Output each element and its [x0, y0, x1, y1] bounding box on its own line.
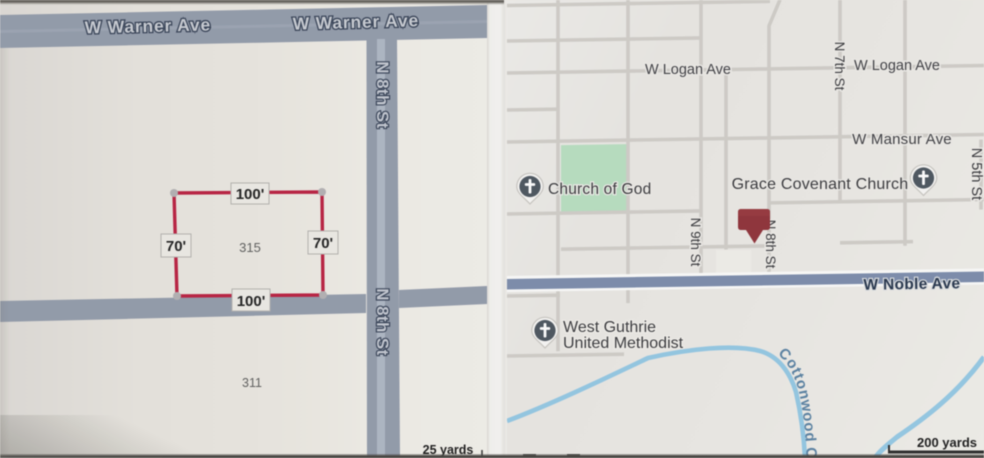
svg-text:W Warner Ave: W Warner Ave [292, 10, 419, 34]
svg-text:70': 70' [166, 238, 186, 255]
svg-text:200 yards: 200 yards [917, 435, 977, 450]
svg-text:N 8th St: N 8th St [373, 61, 392, 128]
svg-text:W Noble Ave: W Noble Ave [863, 275, 960, 294]
svg-text:N 7th St: N 7th St [832, 42, 847, 91]
svg-text:W Logan Ave: W Logan Ave [645, 62, 731, 78]
svg-text:United Methodist: United Methodist [563, 335, 684, 352]
svg-text:N 8th St: N 8th St [373, 288, 392, 355]
svg-text:N 5th St: N 5th St [968, 148, 984, 200]
svg-text:311: 311 [242, 376, 262, 390]
svg-text:W Warner Ave: W Warner Ave [84, 14, 211, 37]
svg-text:W Mansur Ave: W Mansur Ave [852, 131, 952, 148]
svg-text:W Logan Ave: W Logan Ave [854, 58, 940, 74]
svg-text:100': 100' [236, 186, 265, 203]
svg-text:100': 100' [237, 293, 266, 310]
svg-text:West Guthrie: West Guthrie [563, 319, 656, 336]
svg-text:315: 315 [239, 240, 261, 255]
svg-text:Cottonwood C: Cottonwood C [775, 345, 820, 458]
svg-text:70': 70' [313, 235, 333, 252]
svg-text:N 9th St: N 9th St [688, 218, 703, 267]
svg-text:Church of God: Church of God [548, 181, 651, 198]
svg-text:Grace Covenant Church: Grace Covenant Church [732, 176, 909, 193]
